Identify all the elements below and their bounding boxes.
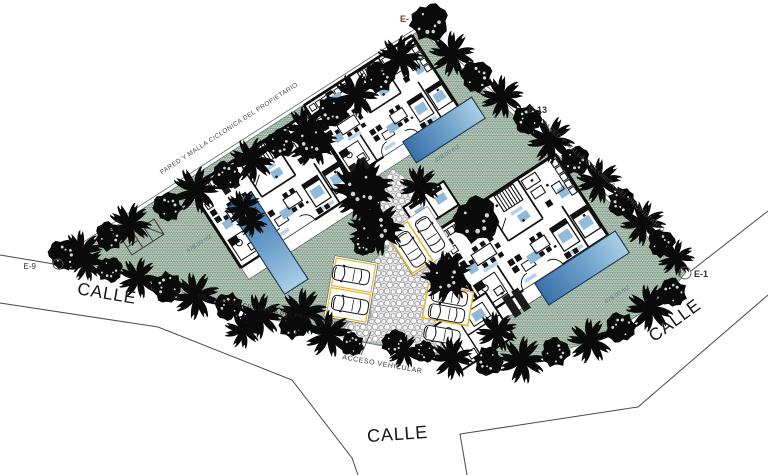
svg-text:E-1: E-1 xyxy=(694,269,708,279)
svg-text:E-13: E-13 xyxy=(528,105,547,115)
svg-text:CALLE: CALLE xyxy=(366,422,428,446)
svg-text:E-: E- xyxy=(400,14,409,24)
svg-text:E-9: E-9 xyxy=(24,262,37,271)
